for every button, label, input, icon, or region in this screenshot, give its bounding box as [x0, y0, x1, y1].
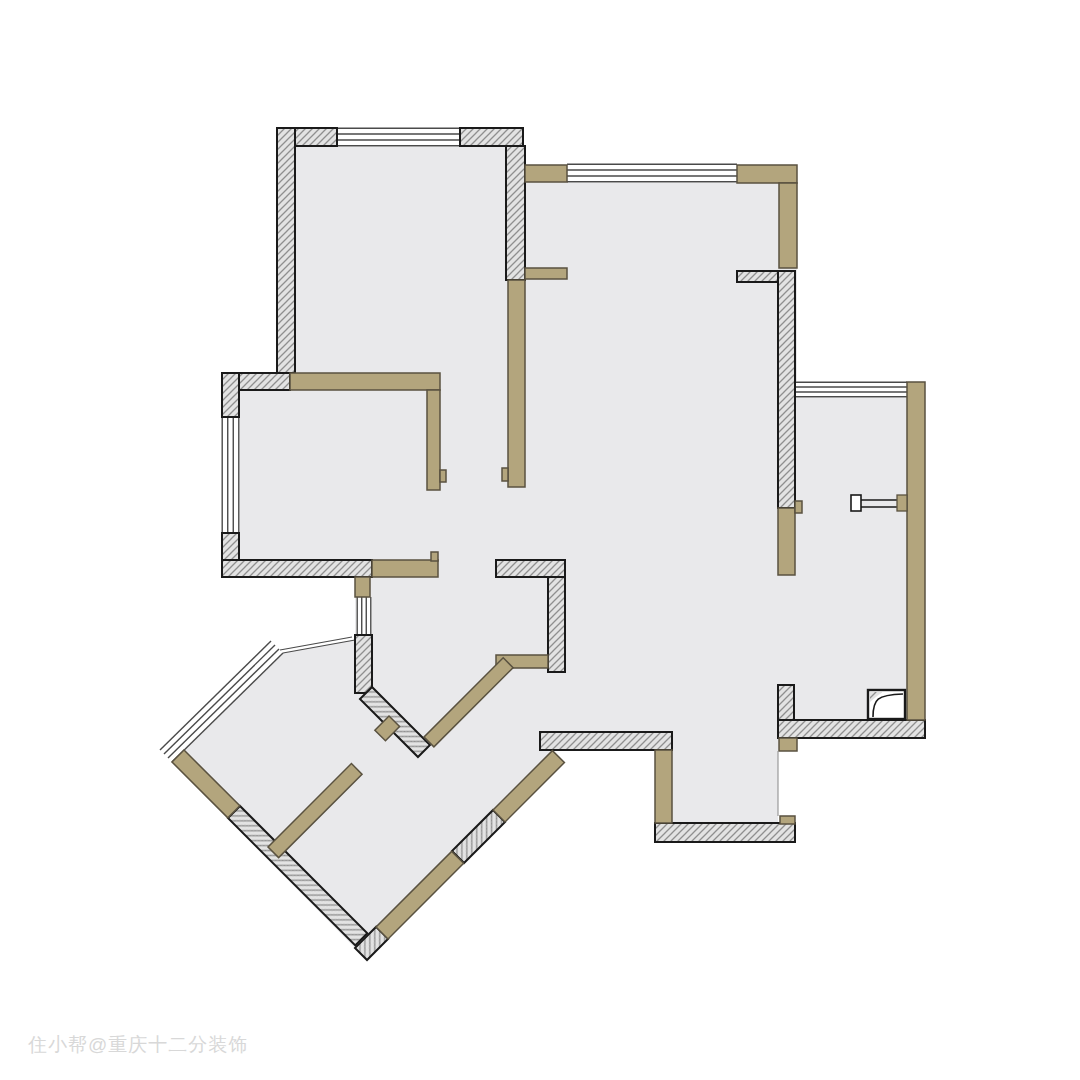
- structural-wall: [460, 128, 523, 146]
- masonry-wall: [525, 165, 567, 182]
- masonry-wall: [372, 560, 438, 577]
- structural-wall: [548, 577, 565, 672]
- structural-wall: [222, 373, 239, 417]
- structural-wall: [496, 560, 565, 577]
- floor-plan-drawing: [0, 0, 1080, 1080]
- masonry-wall: [525, 268, 567, 279]
- masonry-wall: [508, 280, 525, 487]
- structural-wall: [540, 732, 672, 750]
- structural-wall: [222, 560, 372, 577]
- window-band: [795, 381, 907, 398]
- window-band: [221, 417, 240, 533]
- structural-wall: [355, 635, 372, 693]
- masonry-wall: [779, 738, 797, 751]
- masonry-wall: [431, 552, 438, 561]
- floor-plan-canvas: 住小帮@重庆十二分装饰: [0, 0, 1080, 1080]
- structural-wall: [277, 128, 295, 373]
- masonry-wall: [737, 165, 797, 183]
- masonry-wall: [290, 373, 440, 390]
- structural-wall: [506, 146, 525, 280]
- masonry-wall: [427, 390, 440, 490]
- partition-bar-end: [851, 495, 861, 511]
- structural-wall: [778, 720, 925, 738]
- masonry-wall: [778, 508, 795, 575]
- structural-wall: [778, 271, 795, 508]
- masonry-wall: [780, 816, 795, 824]
- void-area: [778, 751, 795, 816]
- structural-wall: [778, 685, 794, 720]
- window-band: [567, 163, 737, 183]
- masonry-wall: [355, 577, 370, 597]
- masonry-wall: [907, 382, 925, 720]
- window-band: [337, 127, 460, 147]
- masonry-wall: [795, 501, 802, 513]
- masonry-wall: [655, 750, 672, 823]
- masonry-wall: [440, 470, 446, 482]
- window-band: [356, 597, 372, 635]
- structural-wall: [737, 271, 778, 282]
- structural-wall: [655, 823, 795, 842]
- masonry-wall: [502, 468, 508, 481]
- partition-bar-attach: [897, 495, 907, 511]
- watermark-text: 住小帮@重庆十二分装饰: [28, 1032, 248, 1058]
- masonry-wall: [779, 183, 797, 268]
